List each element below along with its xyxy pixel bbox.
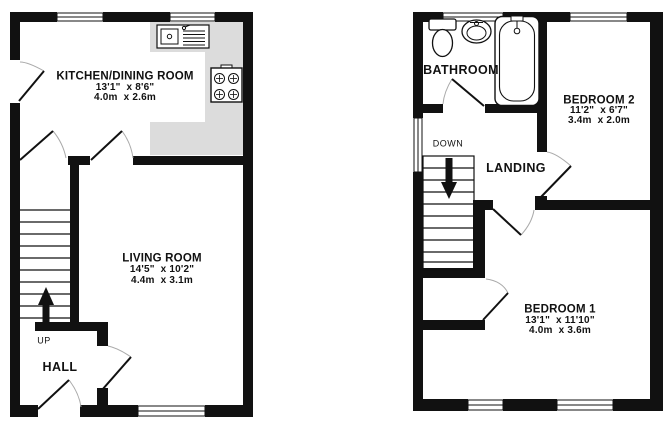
bedroom1-metric-dims: 4.0m x 3.6m [529,326,591,336]
down-arrow-icon [441,158,457,199]
floorplan-drawing [0,0,671,429]
down-label: DOWN [433,140,464,149]
bedroom2-metric-dims: 3.4m x 2.0m [568,116,630,126]
toilet-icon [429,19,456,57]
bathtub-icon [495,16,539,106]
floorplan-canvas: KITCHEN/DINING ROOM 13'1" x 8'6" 4.0m x … [0,0,671,429]
kitchen-metric-dims: 4.0m x 2.6m [94,93,156,103]
up-label: UP [37,337,51,346]
living-imperial-dims: 14'5" x 10'2" [130,265,194,275]
first-doors [443,79,571,320]
up-arrow-icon [38,287,54,322]
landing-label: LANDING [486,162,546,175]
sink-icon [157,25,209,48]
living-metric-dims: 4.4m x 3.1m [131,276,193,286]
hall-label: HALL [43,361,78,374]
basin-icon [462,20,491,43]
hob-icon [211,65,242,102]
bathroom-label: BATHROOM [423,64,499,77]
